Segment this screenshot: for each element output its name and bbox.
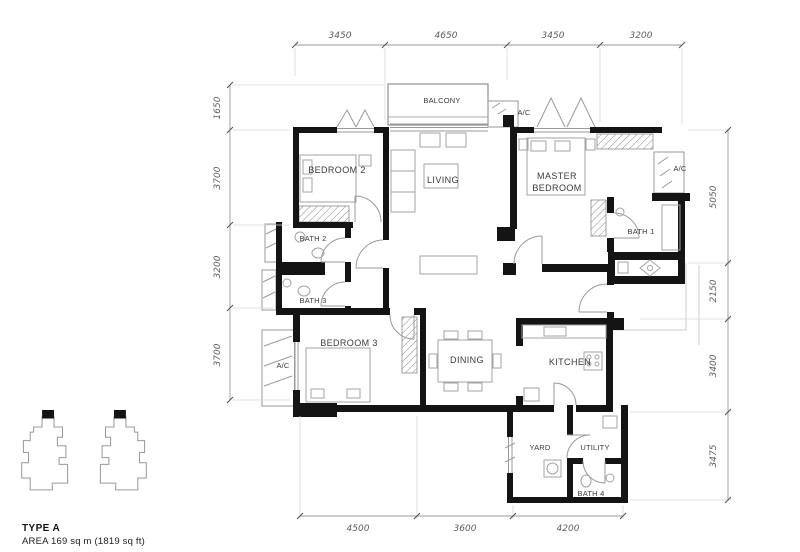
furniture-bath3	[283, 279, 310, 296]
dimension-right: 5050 2150 3400 3475	[630, 127, 731, 503]
room-label-master-line1: MASTER	[537, 171, 577, 181]
floor-plan-page: BALCONY A/C BEDROOM 2 LIVING MASTER BEDR…	[0, 0, 800, 552]
dim-left-4: 3700	[213, 343, 223, 366]
room-label-bedroom3: BEDROOM 3	[320, 338, 378, 348]
dim-right-4: 3475	[709, 444, 719, 467]
furniture-living	[391, 133, 477, 274]
lobby-outline	[613, 263, 699, 345]
room-label-ac-right: A/C	[673, 164, 686, 173]
dim-bottom-1: 4500	[347, 524, 370, 534]
dim-left-2: 3700	[213, 166, 223, 189]
dimension-bottom: 4500 3600 4200	[297, 416, 626, 534]
floor-plan-drawing: BALCONY A/C BEDROOM 2 LIVING MASTER BEDR…	[0, 0, 800, 552]
dim-left-1: 1650	[213, 96, 223, 119]
furniture-yard	[544, 460, 561, 477]
room-label-kitchen: KITCHEN	[549, 357, 591, 367]
key-plan	[22, 410, 147, 490]
windows	[295, 98, 596, 473]
plan-type-label: TYPE A	[22, 523, 60, 534]
room-label-ac-left: A/C	[276, 361, 289, 370]
dim-top-1: 3450	[329, 31, 352, 41]
dim-bottom-2: 3600	[454, 524, 477, 534]
furniture-utility	[603, 416, 617, 428]
dim-right-1: 5050	[709, 185, 719, 208]
room-label-dining: DINING	[450, 355, 484, 365]
room-label-master-line2: BEDROOM	[532, 183, 581, 193]
room-label-balcony: BALCONY	[423, 96, 460, 105]
room-label-ac-top: A/C	[517, 108, 530, 117]
room-label-bath3: BATH 3	[300, 296, 327, 305]
room-label-bath1: BATH 1	[628, 227, 655, 236]
room-label-bath2: BATH 2	[300, 234, 327, 243]
dim-top-4: 3200	[630, 31, 653, 41]
room-label-bedroom2: BEDROOM 2	[308, 165, 366, 175]
room-label-utility: UTILITY	[580, 443, 609, 452]
plan-area-label: AREA 169 sq m (1819 sq ft)	[22, 536, 145, 547]
room-label-living: LIVING	[427, 175, 459, 185]
room-label-bath4: BATH 4	[578, 489, 605, 498]
furniture-bedroom2	[300, 155, 371, 202]
dim-top-2: 4650	[435, 31, 458, 41]
dim-left-3: 3200	[213, 255, 223, 278]
dim-top-3: 3450	[542, 31, 565, 41]
dim-right-3: 3400	[709, 354, 719, 377]
furniture-bedroom3	[306, 348, 370, 402]
unit-marker-icon	[114, 410, 126, 419]
dim-bottom-3: 4200	[557, 524, 580, 534]
furniture-bath4	[581, 474, 614, 487]
unit-marker-icon	[42, 410, 54, 419]
room-label-yard: YARD	[529, 443, 550, 452]
dim-right-2: 2150	[709, 279, 719, 302]
